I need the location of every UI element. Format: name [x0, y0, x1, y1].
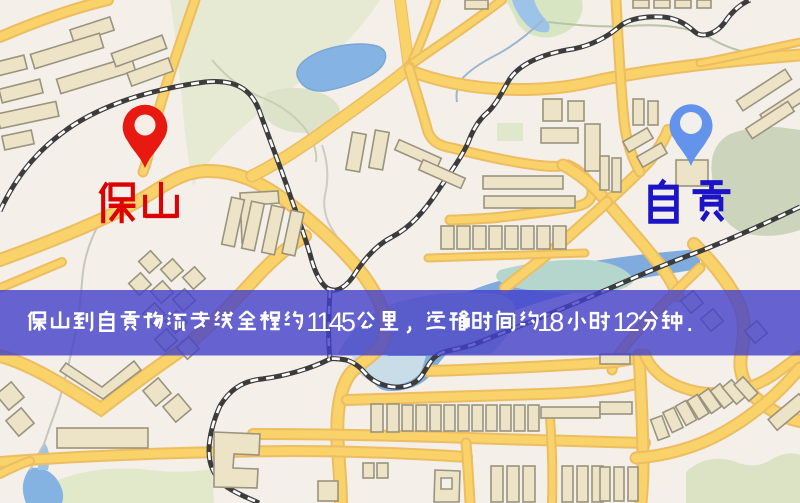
- svg-text:18: 18: [537, 307, 563, 337]
- svg-text:.: .: [686, 307, 694, 337]
- svg-text:1145: 1145: [306, 307, 355, 337]
- svg-text:12: 12: [613, 307, 639, 337]
